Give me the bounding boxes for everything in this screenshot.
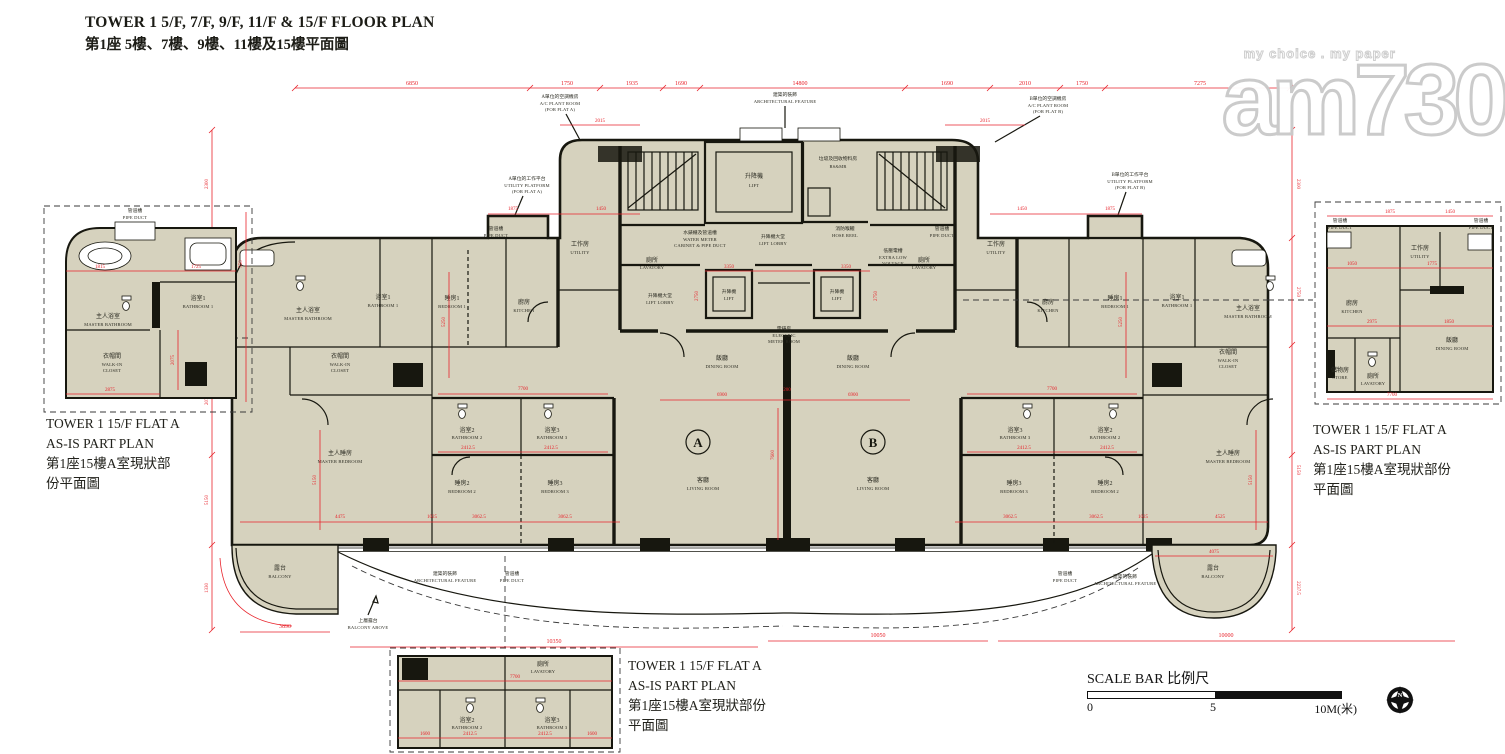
room-label-bathroom1-b-zh: 浴室1: [1169, 293, 1184, 301]
room-label-emr-en1: ELECTRIC: [772, 333, 795, 338]
room-label-bathroom1-a-zh: 浴室1: [375, 293, 390, 301]
room-label-lavatory-b-en: LAVATORY: [912, 265, 937, 270]
room-label-lift-a-zh: 升降機: [722, 288, 737, 295]
inset-part-plan-right: 管道槽 PIPE DUCT 管道槽 PIPE DUCT 工作房 UTILITY …: [1315, 202, 1501, 404]
annotation-balcony-above-en: BALCONY ABOVE: [348, 625, 389, 630]
dim: 1025: [1138, 515, 1149, 520]
dim: 5150: [1295, 465, 1300, 476]
room-label-balcony-left-zh: 露台: [274, 564, 286, 572]
inset-left-bathroom1-zh: 浴室1: [190, 294, 205, 302]
dim: 3062.5: [1089, 515, 1103, 520]
inset-bottom-lavatory-en: LAVATORY: [531, 669, 556, 674]
room-label-bathroom3-a-zh: 浴室3: [544, 426, 559, 434]
dim: 7700: [518, 387, 529, 392]
room-label-water-meter-en1: WATER METER: [683, 237, 717, 242]
dim: 2015: [980, 119, 991, 124]
room-label-pipe-duct-b-en: PIPE DUCT: [930, 233, 954, 238]
dim: 1600: [420, 732, 431, 737]
caption-right-line1: TOWER 1 15/F FLAT A: [1313, 420, 1451, 440]
dim: 5150: [313, 475, 318, 486]
room-label-lift-main-zh: 升降機: [745, 172, 763, 180]
annotation-utility-platform-a-zh: A單位的工作平台: [508, 175, 545, 182]
annotation-pipe-duct-br-zh: 管道槽: [1058, 570, 1073, 577]
dim: 2875: [105, 388, 116, 393]
dim: 1935: [626, 81, 638, 87]
room-label-balcony-right-en: BALCONY: [1201, 574, 1225, 579]
room-label-lift-lobby-lower-zh: 升降機大堂: [648, 292, 672, 299]
room-label-living-b-en: LIVING ROOM: [857, 486, 889, 491]
annotation-utility-platform-b-en1: UTILITY PLATFORM: [1107, 179, 1153, 184]
dim: 2412.5: [538, 732, 552, 737]
inset-bottom-bathroom2-zh: 浴室2: [459, 716, 474, 724]
inset-left-walkin-en1: WALK-IN: [102, 362, 123, 367]
dim: 2412.5: [463, 732, 477, 737]
bathtub: [1232, 250, 1266, 266]
inset-right-dining-zh: 飯廳: [1446, 336, 1458, 344]
annotation-arch-feature-top-zh: 建築的裝飾: [773, 91, 797, 98]
caption-right-line4: 平面圖: [1313, 480, 1451, 500]
inset-left-master-bathroom-zh: 主人浴室: [96, 312, 120, 320]
room-label-dining-b-zh: 飯廳: [847, 354, 859, 362]
room-label-walkin-a-en1: WALK-IN: [330, 362, 351, 367]
dim: 14800: [793, 81, 808, 87]
room-label-master-bedroom-b-en: MASTER BEDROOM: [1206, 459, 1251, 464]
room-label-master-bedroom-b-zh: 主人睡房: [1216, 449, 1240, 457]
annotation-ac-plant-a-zh: A單位的空調機房: [541, 93, 578, 100]
balcony-left: [232, 545, 338, 614]
scale-bar-segment-5-10: [1215, 692, 1342, 698]
room-label-water-meter-zh: 水錶櫃及管道槽: [683, 229, 717, 236]
dim: 2412.5: [544, 446, 558, 451]
caption-part-plan-left: TOWER 1 15/F FLAT A AS-IS PART PLAN 第1座1…: [46, 414, 180, 494]
inset-right-pipe-duct1-en: PIPE DUCT: [1328, 225, 1352, 230]
room-label-bedroom1-b-zh: 睡房1: [1107, 294, 1122, 302]
dim: 3890: [279, 624, 291, 630]
dim: 2300: [205, 179, 210, 190]
annotation-arch-feature-bl-en: ARCHITECTURAL FEATURE: [414, 578, 477, 583]
caption-bottom-line2: AS-IS PART PLAN: [628, 676, 766, 696]
dim: 1875: [1385, 210, 1396, 215]
room-label-bedroom3-b-zh: 睡房3: [1006, 479, 1021, 487]
dim: 2750: [695, 291, 700, 302]
room-label-dining-b-en: DINING ROOM: [837, 364, 870, 369]
scale-tick-0: 0: [1087, 700, 1093, 715]
room-label-hose-reel-en: HOSE REEL: [832, 233, 858, 238]
annotation-pipe-duct-br-en: PIPE DUCT: [1053, 578, 1077, 583]
room-label-pipe-duct-a-zh: 管道槽: [489, 225, 504, 232]
dim: 3350: [841, 265, 852, 270]
caption-bottom-line1: TOWER 1 15/F FLAT A: [628, 656, 766, 676]
dim: 5250: [1119, 317, 1124, 328]
dim: 1725: [191, 265, 202, 270]
inset-left-pipe-duct-zh: 管道槽: [128, 207, 143, 214]
room-label-lift-b-en: LIFT: [832, 296, 842, 301]
room-label-bedroom1-a-en: BEDROOM 1: [438, 304, 466, 309]
room-label-emr-zh: 電錶房: [777, 325, 792, 332]
inset-right-store-zh: 儲物房: [1331, 366, 1349, 374]
room-label-lift-lobby-lower-en: LIFT LOBBY: [646, 300, 674, 305]
room-label-master-bathroom-b-zh: 主人浴室: [1236, 304, 1260, 312]
room-label-utility-b-zh: 工作房: [987, 240, 1005, 248]
dim: 1450: [1017, 207, 1028, 212]
caption-bottom-line3: 第1座15樓A室現狀部份: [628, 696, 766, 716]
room-label-bedroom2-b-zh: 睡房2: [1097, 479, 1112, 487]
inset-right-pipe-duct2-zh: 管道槽: [1474, 217, 1489, 224]
scale-bar: SCALE BAR 比例尺 0 5 10M(米): [1087, 668, 1343, 713]
ac-plant-block-b: [936, 146, 980, 162]
scale-tick-5: 5: [1210, 700, 1216, 715]
room-label-kitchen-a-en: KITCHEN: [513, 308, 535, 313]
dim: 1815: [95, 265, 106, 270]
room-label-bedroom3-a-en: BEDROOM 3: [541, 489, 569, 494]
room-label-balcony-right-zh: 露台: [1207, 564, 1219, 572]
room-label-lavatory-a-zh: 廁所: [646, 256, 658, 264]
dim: 7700: [1387, 393, 1398, 398]
compass-n-letter: N: [1398, 692, 1403, 699]
inset-right-dining-en: DINING ROOM: [1436, 346, 1469, 351]
annotation-pipe-duct-bl-en: PIPE DUCT: [500, 578, 524, 583]
unit-b-letter: B: [869, 435, 878, 450]
room-label-bathroom1-b-en: BATHROOM 1: [1162, 303, 1193, 308]
room-label-utility-a-en: UTILITY: [570, 250, 590, 255]
north-compass-icon: N: [1386, 686, 1414, 714]
room-label-bedroom2-a-en: BEDROOM 2: [448, 489, 476, 494]
dim: 1690: [675, 81, 687, 87]
inset-bottom-bathroom2-en: BATHROOM 2: [452, 725, 483, 730]
bathtub: [240, 250, 274, 266]
room-label-living-b-zh: 客廳: [867, 476, 879, 484]
room-label-lift-main-en: LIFT: [749, 183, 759, 188]
toilet: [1266, 276, 1275, 290]
annotation-ac-plant-b-zh: B單位的空調機房: [1030, 95, 1067, 102]
dim: 1600: [587, 732, 598, 737]
dim: 2412.5: [1100, 446, 1114, 451]
dim: 7700: [510, 675, 521, 680]
annotation-utility-platform-b-zh: B單位的工作平台: [1112, 171, 1149, 178]
annotation-ac-plant-b-en2: (FOR FLAT B): [1033, 109, 1063, 114]
dim: 2015: [595, 119, 606, 124]
caption-left-line3: 第1座15樓A室現狀部: [46, 454, 180, 474]
annotation-balcony-above-zh: 上層露台: [358, 617, 377, 624]
floor-plan-page: 主人浴室 MASTER BATHROOM 浴室1 BATHROOM 1 睡房1 …: [0, 0, 1505, 754]
room-label-bedroom1-b-en: BEDROOM 1: [1101, 304, 1129, 309]
dim: 1750: [1076, 81, 1088, 87]
caption-bottom-line4: 平面圖: [628, 716, 766, 736]
dim: 1025: [427, 515, 438, 520]
dim: 5150: [1249, 475, 1254, 486]
room-label-elv-en1: EXTRA LOW: [879, 255, 908, 260]
annotation-arch-feature-br-zh: 建築的裝飾: [1113, 573, 1137, 580]
dim: 10050: [871, 633, 886, 639]
architectural-fin: [798, 128, 840, 141]
room-label-walkin-a-en2: CLOSET: [331, 368, 349, 373]
dim: 6850: [406, 81, 418, 87]
scale-tick-10: 10M(米): [1314, 700, 1357, 717]
room-label-bathroom2-a-en: BATHROOM 2: [452, 435, 483, 440]
inset-right-utility-en: UTILITY: [1410, 254, 1430, 259]
room-label-bathroom3-a-en: BATHROOM 3: [537, 435, 568, 440]
room-label-kitchen-b-zh: 廚房: [1042, 298, 1054, 306]
room-label-walkin-b-en2: CLOSET: [1219, 364, 1237, 369]
dim: 10350: [547, 639, 562, 645]
room-label-utility-b-en: UTILITY: [986, 250, 1006, 255]
dim: 1875: [508, 207, 519, 212]
room-label-bathroom2-a-zh: 浴室2: [459, 426, 474, 434]
scale-bar-title: SCALE BAR 比例尺: [1087, 668, 1343, 688]
room-label-master-bathroom-a-en: MASTER BATHROOM: [284, 316, 332, 321]
room-label-lift-lobby-upper-en: LIFT LOBBY: [759, 241, 787, 246]
inset-bottom-bathroom3-en: BATHROOM 3: [537, 725, 568, 730]
dim: 4075: [1209, 550, 1220, 555]
architectural-fin: [740, 128, 782, 141]
room-label-bedroom3-a-zh: 睡房3: [547, 479, 562, 487]
room-label-walkin-a-zh: 衣帽間: [331, 352, 349, 360]
scale-bar-graphic: [1087, 691, 1342, 699]
dim: 7600: [771, 450, 776, 461]
inset-right-lavatory-en: LAVATORY: [1361, 381, 1386, 386]
dim: 2010: [1019, 81, 1031, 87]
room-label-lift-a-en: LIFT: [724, 296, 734, 301]
dim: 4475: [335, 515, 346, 520]
room-label-elv-zh: 低壓電槽: [883, 247, 902, 254]
dim: 1875: [1105, 207, 1116, 212]
inset-right-utility-zh: 工作房: [1411, 244, 1429, 252]
unit-a-letter: A: [693, 435, 703, 450]
inset-part-plan-bottom: 廁所 LAVATORY 浴室2 BATHROOM 2 浴室3 BATHROOM …: [390, 648, 620, 752]
dim: 3062.5: [558, 515, 572, 520]
dim: 5250: [442, 317, 447, 328]
inset-right-kitchen-en: KITCHEN: [1341, 309, 1363, 314]
room-label-bedroom1-a-zh: 睡房1: [444, 294, 459, 302]
dim: 6900: [717, 393, 728, 398]
scale-bar-segment-0-5: [1088, 692, 1215, 698]
room-label-lift-b-zh: 升降機: [830, 288, 845, 295]
dim: 2412.5: [461, 446, 475, 451]
room-label-bathroom3-b-zh: 浴室3: [1007, 426, 1022, 434]
inset-left-bathroom1-en: BATHROOM 1: [183, 304, 214, 309]
inset-bottom-bathroom3-zh: 浴室3: [544, 716, 559, 724]
dim: 1690: [941, 81, 953, 87]
dim: 1775: [1427, 262, 1438, 267]
inset-bottom-lavatory-zh: 廁所: [537, 660, 549, 668]
room-label-utility-a-zh: 工作房: [571, 240, 589, 248]
inset-right-pipe-duct1-zh: 管道槽: [1333, 217, 1348, 224]
room-label-kitchen-b-en: KITCHEN: [1037, 308, 1059, 313]
dimensions-right: 2300 2750 5150 2237.5: [1289, 127, 1300, 633]
room-label-bedroom2-a-zh: 睡房2: [454, 479, 469, 487]
room-label-rsmr-en: RS&MR: [829, 164, 847, 169]
page-title-zh: 第1座 5樓、7樓、9樓、11樓及15樓平面圖: [85, 34, 434, 56]
room-label-water-meter-en2: CABINET & PIPE DUCT: [674, 243, 726, 248]
room-label-bathroom1-a-en: BATHROOM 1: [368, 303, 399, 308]
annotation-arch-feature-bl-zh: 建築的裝飾: [433, 570, 457, 577]
party-wall: [783, 335, 791, 545]
room-label-living-a-en: LIVING ROOM: [687, 486, 719, 491]
page-title-en: TOWER 1 5/F, 7/F, 9/F, 11/F & 15/F FLOOR…: [85, 12, 434, 34]
inset-left-pipe-duct-en: PIPE DUCT: [123, 215, 147, 220]
room-label-walkin-b-en1: WALK-IN: [1218, 358, 1239, 363]
caption-right-line2: AS-IS PART PLAN: [1313, 440, 1451, 460]
dim: 1450: [1445, 210, 1456, 215]
dim: 7275: [1194, 81, 1206, 87]
annotation-pipe-duct-bl-zh: 管道槽: [505, 570, 520, 577]
dim: 550: [239, 260, 244, 268]
inset-left-walkin-en2: CLOSET: [103, 368, 121, 373]
room-label-master-bathroom-b-en: MASTER BATHROOM: [1224, 314, 1272, 319]
inset-right-kitchen-zh: 廚房: [1346, 299, 1358, 307]
annotation-utility-platform-a-en1: UTILITY PLATFORM: [504, 183, 550, 188]
caption-left-line2: AS-IS PART PLAN: [46, 434, 180, 454]
dim: 4525: [1215, 515, 1226, 520]
room-label-rsmr-zh: 垃圾及回收物料房: [819, 155, 858, 162]
dim: 1450: [596, 207, 607, 212]
page-title: TOWER 1 5/F, 7/F, 9/F, 11/F & 15/F FLOOR…: [85, 12, 434, 56]
room-label-walkin-b-zh: 衣帽間: [1219, 348, 1237, 356]
annotation-arch-feature-br-en: ARCHITECTURAL FEATURE: [1094, 581, 1157, 586]
dim: 2237.5: [1295, 581, 1300, 595]
room-label-bedroom3-b-en: BEDROOM 3: [1000, 489, 1028, 494]
room-label-dining-a-en: DINING ROOM: [706, 364, 739, 369]
inset-left-walkin-zh: 衣帽間: [103, 352, 121, 360]
building-footprint: [232, 128, 1268, 545]
dim: 7700: [1047, 387, 1058, 392]
annotation-utility-platform-b-en2: (FOR FLAT B): [1115, 185, 1145, 190]
room-label-master-bedroom-a-en: MASTER BEDROOM: [318, 459, 363, 464]
room-label-hose-reel-zh: 消防喉轆: [835, 225, 854, 232]
inset-right-lavatory-zh: 廁所: [1367, 372, 1379, 380]
room-label-lift-lobby-upper-zh: 升降機大堂: [761, 233, 785, 240]
dim: 2975: [1367, 320, 1378, 325]
dim: 2750: [1295, 287, 1300, 298]
dim: 3062.5: [1003, 515, 1017, 520]
dim: 2300: [1295, 179, 1300, 190]
dim: 3350: [724, 265, 735, 270]
inset-left-master-bathroom-en: MASTER BATHROOM: [84, 322, 132, 327]
room-label-master-bathroom-a-zh: 主人浴室: [296, 306, 320, 314]
room-label-kitchen-a-zh: 廚房: [518, 298, 530, 306]
room-label-bathroom2-b-en: BATHROOM 2: [1090, 435, 1121, 440]
dim: 1050: [1347, 262, 1358, 267]
dim: 2075: [171, 355, 176, 366]
room-label-bathroom3-b-en: BATHROOM 3: [1000, 435, 1031, 440]
annotation-ac-plant-a-en2: (FOR FLAT A): [545, 107, 575, 112]
room-label-bedroom2-b-en: BEDROOM 2: [1091, 489, 1119, 494]
annotation-arch-feature-top-en: ARCHITECTURAL FEATURE: [754, 99, 817, 104]
floor-plan-drawing: 主人浴室 MASTER BATHROOM 浴室1 BATHROOM 1 睡房1 …: [0, 0, 1505, 754]
dim: 1330: [205, 583, 210, 594]
dim: 3062.5: [472, 515, 486, 520]
room-label-pipe-duct-b-zh: 管道槽: [935, 225, 950, 232]
caption-right-line3: 第1座15樓A室現狀部份: [1313, 460, 1451, 480]
dim: 1750: [561, 81, 573, 87]
annotation-ac-plant-b-en1: A/C PLANT ROOM: [1028, 103, 1069, 108]
room-label-balcony-left-en: BALCONY: [268, 574, 292, 579]
dim: 1850: [1444, 320, 1455, 325]
inset-part-plan-left: 管道槽 PIPE DUCT 主人浴室 MASTER BATHROOM 浴室1 B…: [44, 206, 252, 412]
caption-part-plan-bottom: TOWER 1 15/F FLAT A AS-IS PART PLAN 第1座1…: [628, 656, 766, 736]
room-label-lavatory-b-zh: 廁所: [918, 256, 930, 264]
room-label-lavatory-a-en: LAVATORY: [640, 265, 665, 270]
room-label-bathroom2-b-zh: 浴室2: [1097, 426, 1112, 434]
dim: 6900: [848, 393, 859, 398]
dim: 2750: [874, 291, 879, 302]
inset-right-store-en: STORE: [1332, 375, 1347, 380]
room-label-master-bedroom-a-zh: 主人睡房: [328, 449, 352, 457]
room-label-living-a-zh: 客廳: [697, 476, 709, 484]
caption-left-line1: TOWER 1 15/F FLAT A: [46, 414, 180, 434]
caption-part-plan-right: TOWER 1 15/F FLAT A AS-IS PART PLAN 第1座1…: [1313, 420, 1451, 500]
caption-left-line4: 份平面圖: [46, 474, 180, 494]
dim: 2412.5: [1017, 446, 1031, 451]
room-label-elv-en2: VOLTAGE: [882, 261, 904, 266]
room-label-dining-a-zh: 飯廳: [716, 354, 728, 362]
room-label-emr-en2: METER ROOM: [768, 339, 800, 344]
annotation-ac-plant-a-en1: A/C PLANT ROOM: [540, 101, 581, 106]
inset-right-pipe-duct2-en: PIPE DUCT: [1469, 225, 1493, 230]
room-label-pipe-duct-a-en: PIPE DUCT: [484, 233, 508, 238]
annotation-utility-platform-a-en2: (FOR FLAT A): [512, 189, 542, 194]
dim: 10000: [1219, 633, 1234, 639]
dim: 5150: [205, 495, 210, 506]
dim: 200: [783, 388, 791, 393]
